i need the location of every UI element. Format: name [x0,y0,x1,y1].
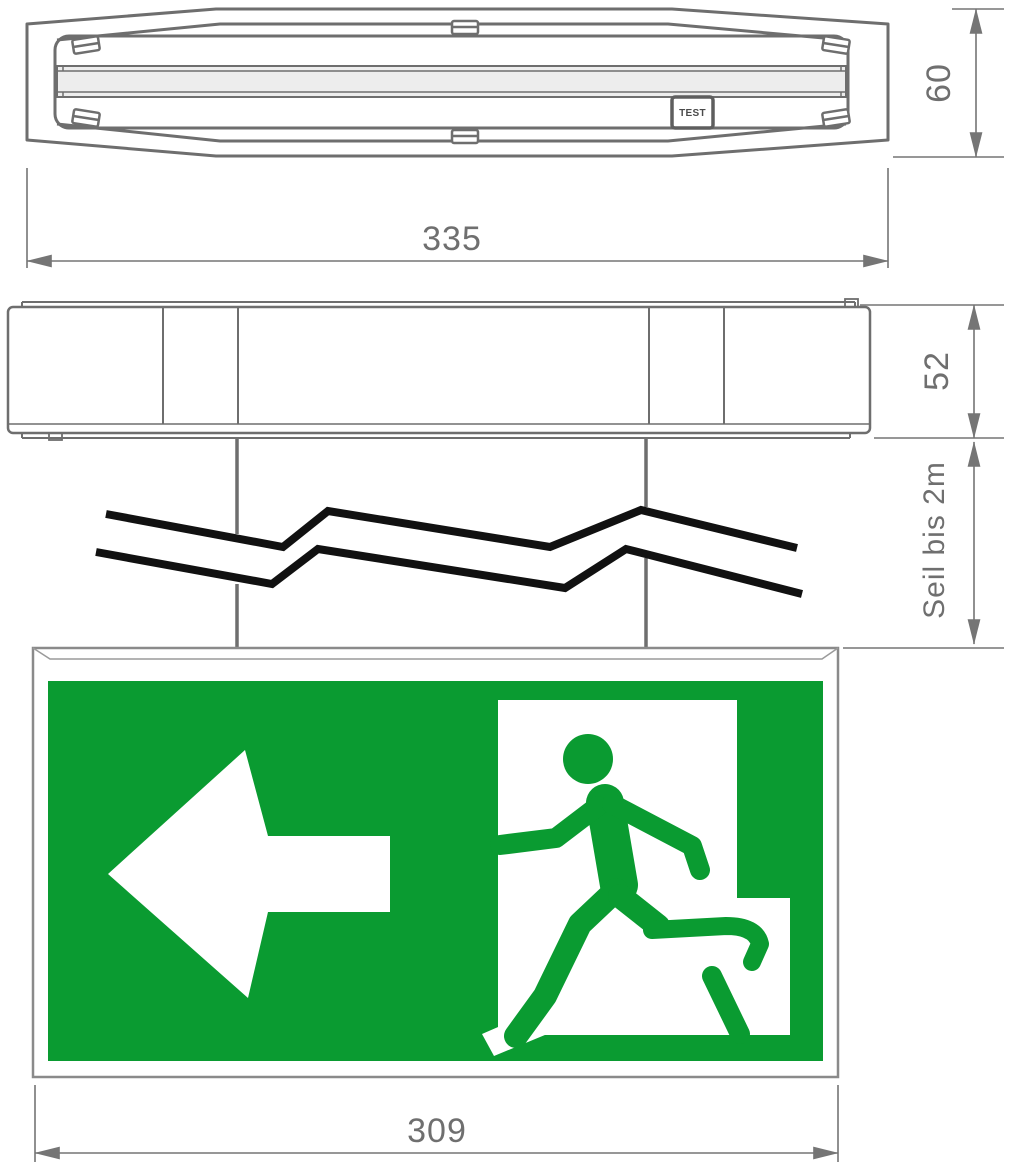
break-line-lower [96,549,802,594]
technical-drawing: TEST 60 335 [0,0,1009,1165]
dim-309-label: 309 [407,1112,467,1150]
side-view: 52 [8,299,1004,440]
break-line-upper [106,510,797,548]
test-button: TEST [672,97,713,128]
suspension-cables [237,438,646,648]
top-view: TEST 60 [27,9,1004,157]
running-man-head [563,734,613,784]
lamp-strip [57,66,846,97]
dim-seil-label: Seil bis 2m [918,461,951,619]
dim-335-label: 335 [422,220,482,258]
dim-335: 335 [27,168,888,268]
dim-52-label: 52 [918,351,956,391]
dim-309: 309 [35,1085,838,1162]
mounting-clip [452,21,478,34]
mounting-clip [822,109,850,127]
mounting-clip [452,130,478,143]
mounting-clip [72,36,100,54]
mounting-clip [72,109,100,127]
dim-seil: Seil bis 2m [843,442,1004,648]
cable-break-symbol [96,510,802,594]
housing-body [8,307,870,433]
dim-60-label: 60 [920,63,958,103]
dim-60: 60 [893,9,1004,157]
mounting-clip [822,36,850,54]
test-button-label: TEST [679,108,706,119]
exit-sign [33,648,838,1077]
dim-52: 52 [860,305,1004,438]
technical-drawing-page: TEST 60 335 [0,0,1009,1165]
